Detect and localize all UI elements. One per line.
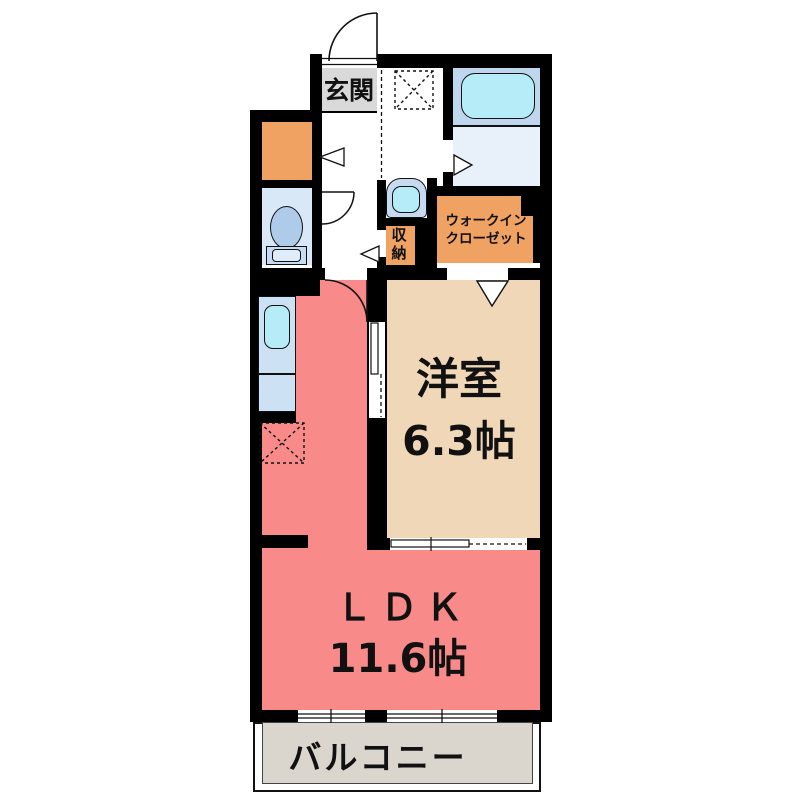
closet-door	[361, 230, 386, 262]
closet-label: 収納	[389, 227, 410, 263]
ldk-label: ＬＤＫ	[336, 577, 471, 631]
hall-storage-door-arrow	[320, 148, 344, 166]
walk-in-closet-label-line1: ウォークイン	[446, 212, 527, 230]
refrigerator-space	[260, 423, 304, 463]
entrance-door	[329, 13, 377, 61]
toilet-door	[322, 192, 354, 224]
walk-in-closet-label: ウォークイン クローゼット	[446, 212, 527, 248]
western-room-bottom-sliding-door	[390, 537, 527, 551]
bathroom-door	[443, 140, 472, 175]
ldk-door	[325, 280, 367, 322]
western-room-side-sliding-door	[369, 322, 385, 418]
walk-in-closet-door	[447, 268, 508, 306]
walk-in-closet-label-line2: クローゼット	[446, 230, 527, 248]
western-room-label: 洋室	[416, 345, 502, 407]
ldk-size: 11.6帖	[329, 626, 468, 684]
entrance-threshold	[322, 54, 377, 68]
floor-plan: 玄関 ウォークイン クローゼット 収納 洋室 6.3帖 ＬＤＫ 11.6帖 バル…	[0, 0, 800, 800]
window	[298, 709, 365, 723]
washroom-sliding-door	[377, 68, 386, 180]
western-room-size: 6.3帖	[402, 407, 516, 467]
balcony-label: バルコニー	[288, 731, 467, 779]
entrance-label: 玄関	[324, 71, 374, 107]
washing-machine-space	[395, 71, 433, 109]
window	[387, 709, 497, 723]
